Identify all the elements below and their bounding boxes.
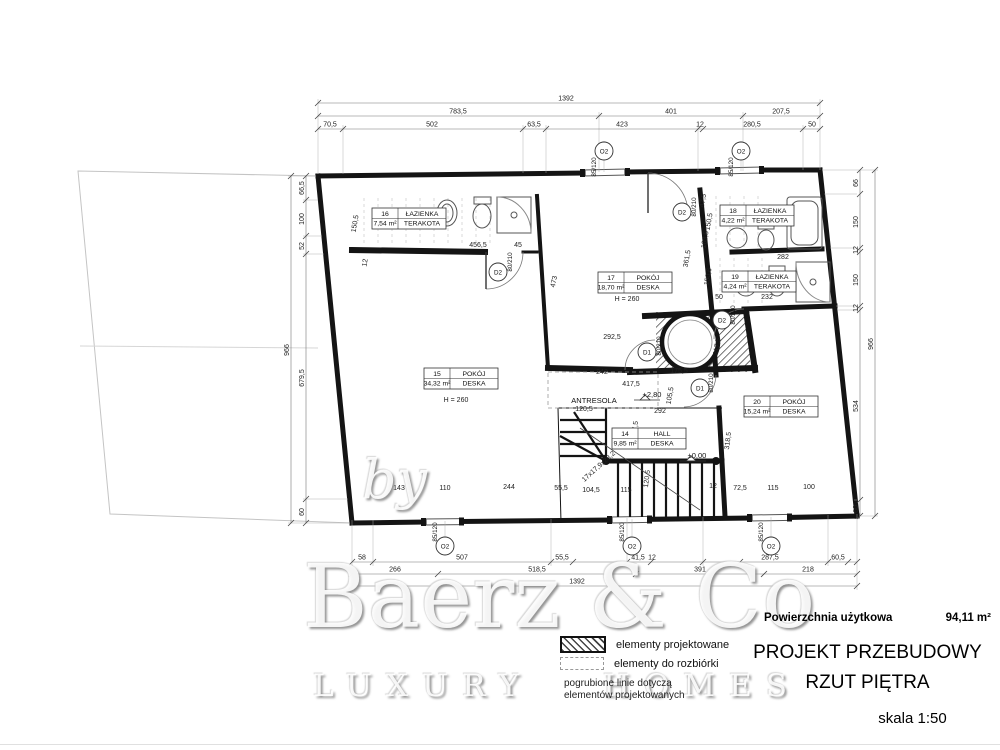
- dim-label: ANTRESOLA: [571, 396, 616, 405]
- dim-label: 15,24 m²: [744, 409, 772, 416]
- dim-label: 318,5: [724, 432, 733, 450]
- dim-label: 85/120: [591, 157, 598, 177]
- shower-19: [796, 262, 830, 302]
- dim-label: 110: [439, 485, 450, 492]
- toilet-16-tank: [474, 197, 491, 204]
- dim-label: 679,5: [299, 369, 306, 387]
- dim-label: 85/120: [619, 522, 626, 542]
- legend-label-projected: elementy projektowane: [616, 639, 729, 651]
- dim-label: 20: [753, 399, 761, 406]
- dim-label: D2: [678, 209, 687, 216]
- usable-area-label: Powierzchnia użytkowa: [764, 612, 892, 624]
- dim-label: +2,80: [643, 390, 662, 399]
- dim-label: 66: [853, 179, 860, 187]
- dim-label: ŁAZIENKA: [754, 208, 787, 215]
- dim-label: 14: [621, 431, 629, 438]
- dim-label: 232: [761, 294, 773, 301]
- dim-label: O2: [628, 543, 637, 550]
- dim-label: 12: [853, 304, 860, 312]
- dim-label: 207,5: [772, 109, 790, 116]
- usable-area-value: 94,11 m²: [946, 612, 991, 624]
- dim-label: 55,5: [554, 485, 568, 492]
- legend: elementy projektowane elementy do rozbió…: [560, 636, 760, 702]
- legend-row-projected: elementy projektowane: [560, 636, 760, 653]
- dim-label: O2: [441, 543, 450, 550]
- dim-label: ŁAZIENKA: [406, 211, 439, 218]
- dim-label: D2: [718, 317, 727, 324]
- dim-label: 80/210: [507, 252, 514, 272]
- dim-label: TERAKOTA: [754, 284, 791, 291]
- dim-label: 287,5: [761, 555, 779, 562]
- dim-label: 85/120: [728, 157, 735, 177]
- dim-label: 143: [393, 485, 405, 492]
- legend-label-demolition: elementy do rozbiórki: [614, 658, 719, 670]
- usable-area-row: Powierzchnia użytkowa 94,11 m²: [740, 612, 995, 624]
- dim-label: 19: [731, 274, 739, 281]
- dim-label: 966: [284, 344, 291, 356]
- dim-label: 115: [767, 485, 778, 492]
- dim-label: 12: [853, 246, 860, 254]
- dim-label: 18,70 m²: [598, 285, 626, 292]
- dim-label: 80/210: [730, 305, 737, 325]
- dim-label: 58: [358, 555, 366, 562]
- dim-label: 15: [433, 371, 441, 378]
- dim-label: 175,5: [670, 368, 688, 375]
- dim-label: D2: [494, 269, 503, 276]
- dim-label: H = 260: [615, 296, 640, 303]
- dim-label: 4,24 m²: [723, 284, 747, 291]
- dim-label: 45: [514, 242, 522, 249]
- dim-label: ±0,00: [688, 451, 707, 460]
- legend-swatch-projected: [560, 636, 606, 653]
- dim-label: 70,5: [323, 122, 337, 129]
- dim-label: 60: [853, 505, 860, 513]
- dim-label: 423: [616, 122, 628, 129]
- dim-label: 34,32 m²: [424, 381, 452, 388]
- dim-label: 12: [709, 483, 717, 490]
- floor-plan-page: 1392783,5401207,570,550263,542312280,550…: [0, 0, 1000, 750]
- dim-label: POKÓJ: [782, 397, 805, 406]
- dim-label: 266: [389, 567, 401, 574]
- dim-label: 66,5: [299, 181, 306, 195]
- toilet-16: [473, 204, 491, 228]
- project-title-line2: RZUT PIĘTRA: [740, 672, 995, 694]
- dim-label: 60,5: [831, 555, 845, 562]
- dim-label: H = 260: [444, 397, 469, 404]
- dim-label: 4,22 m²: [721, 218, 745, 225]
- dim-label: 50: [715, 294, 723, 301]
- dim-label: 80/210: [656, 336, 663, 356]
- dim-label: 292,5: [603, 334, 621, 341]
- dim-label: 292: [654, 408, 666, 415]
- dim-label: 280,5: [743, 122, 761, 129]
- dim-label: POKÓJ: [462, 369, 485, 378]
- dim-label: 115: [620, 487, 631, 494]
- dim-label: 150,5: [705, 212, 715, 231]
- dim-label: 12: [648, 555, 656, 562]
- dim-label: 242: [596, 369, 608, 376]
- dim-label: 16: [381, 211, 389, 218]
- dim-label: D1: [696, 385, 705, 392]
- shower-16: [497, 197, 531, 233]
- dim-label: 12: [361, 258, 369, 267]
- dim-label: 80/210: [708, 373, 715, 393]
- legend-row-demolition: elementy do rozbiórki: [560, 657, 760, 670]
- dim-label: 783,5: [449, 109, 467, 116]
- project-title-line1: PROJEKT PRZEBUDOWY: [740, 642, 995, 664]
- dim-label: 391: [694, 567, 706, 574]
- dim-label: 7,54 m²: [373, 221, 397, 228]
- circular-stair: [662, 314, 718, 370]
- dim-label: 401: [665, 109, 677, 116]
- dim-label: 120,5: [643, 470, 652, 488]
- dim-label: ŁAZIENKA: [756, 274, 789, 281]
- dim-label: HALL: [653, 431, 670, 438]
- dim-label: 534: [853, 400, 860, 412]
- dim-label: TERAKOTA: [404, 221, 441, 228]
- dim-label: O2: [737, 148, 746, 155]
- dim-label: 966: [868, 338, 875, 350]
- dim-label: 282: [777, 254, 789, 261]
- dim-label: 473: [550, 275, 559, 288]
- dim-label: 85/120: [432, 522, 439, 542]
- dim-label: POKÓJ: [636, 273, 659, 282]
- dim-label: 47,5: [699, 193, 708, 208]
- dim-label: 60: [299, 508, 306, 516]
- dim-label: 18: [729, 208, 737, 215]
- dim-label: 100: [299, 213, 306, 225]
- dim-label: DESKA: [636, 285, 660, 292]
- dim-label: 63,5: [527, 122, 541, 129]
- dim-label: D1: [643, 349, 652, 356]
- legend-note: pogrubione linie dotyczą elementów proje…: [564, 678, 760, 702]
- dim-label: O2: [600, 148, 609, 155]
- page-divider-line: [0, 744, 1000, 745]
- dim-label: 417,5: [622, 381, 640, 388]
- dim-label: 1392: [569, 579, 585, 586]
- dim-label: 72,5: [733, 485, 747, 492]
- dim-label: 80/210: [691, 197, 698, 217]
- scale-label: skala 1:50: [740, 710, 995, 727]
- dim-label: 218: [802, 567, 814, 574]
- dim-label: DESKA: [650, 441, 674, 448]
- dim-label: 1392: [558, 96, 574, 103]
- dim-label: O2: [767, 543, 776, 550]
- dim-label: 100: [803, 484, 815, 491]
- dim-label: 518,5: [528, 567, 546, 574]
- dim-label: 150,6: [704, 267, 714, 286]
- dim-label: DESKA: [462, 381, 486, 388]
- dim-label: 150,5: [351, 214, 361, 233]
- legend-note-line2: elementów projektowanych: [564, 690, 760, 702]
- dim-label: 85/120: [758, 522, 765, 542]
- dim-label: 361,5: [683, 249, 693, 268]
- dim-label: 150: [853, 216, 860, 228]
- toilet-18: [758, 230, 774, 250]
- dim-label: DESKA: [782, 409, 806, 416]
- dim-label: 244: [503, 484, 515, 491]
- dim-label: 55,5: [555, 555, 569, 562]
- dim-label: TERAKOTA: [752, 218, 789, 225]
- dim-label: 150: [853, 274, 860, 286]
- dim-label: 120,5: [575, 406, 593, 413]
- parcel-outline: [78, 171, 352, 523]
- dim-label: 17: [607, 275, 615, 282]
- dim-label: 456,5: [469, 242, 487, 249]
- dim-label: 41,5: [631, 555, 645, 562]
- dim-label: 12: [696, 122, 704, 129]
- dim-label: 105,5: [666, 386, 676, 405]
- legend-note-line1: pogrubione linie dotyczą: [564, 678, 760, 690]
- staircase: [558, 408, 722, 522]
- dim-label: 507: [456, 555, 468, 562]
- title-block: Powierzchnia użytkowa 94,11 m² PROJEKT P…: [740, 612, 995, 727]
- dim-label: 502: [426, 122, 438, 129]
- legend-swatch-demolition: [560, 657, 604, 670]
- dim-label: 104,5: [582, 487, 600, 494]
- dim-label: 9,85 m²: [613, 441, 637, 448]
- dim-label: 52: [299, 242, 306, 250]
- dim-label: 50: [808, 122, 816, 129]
